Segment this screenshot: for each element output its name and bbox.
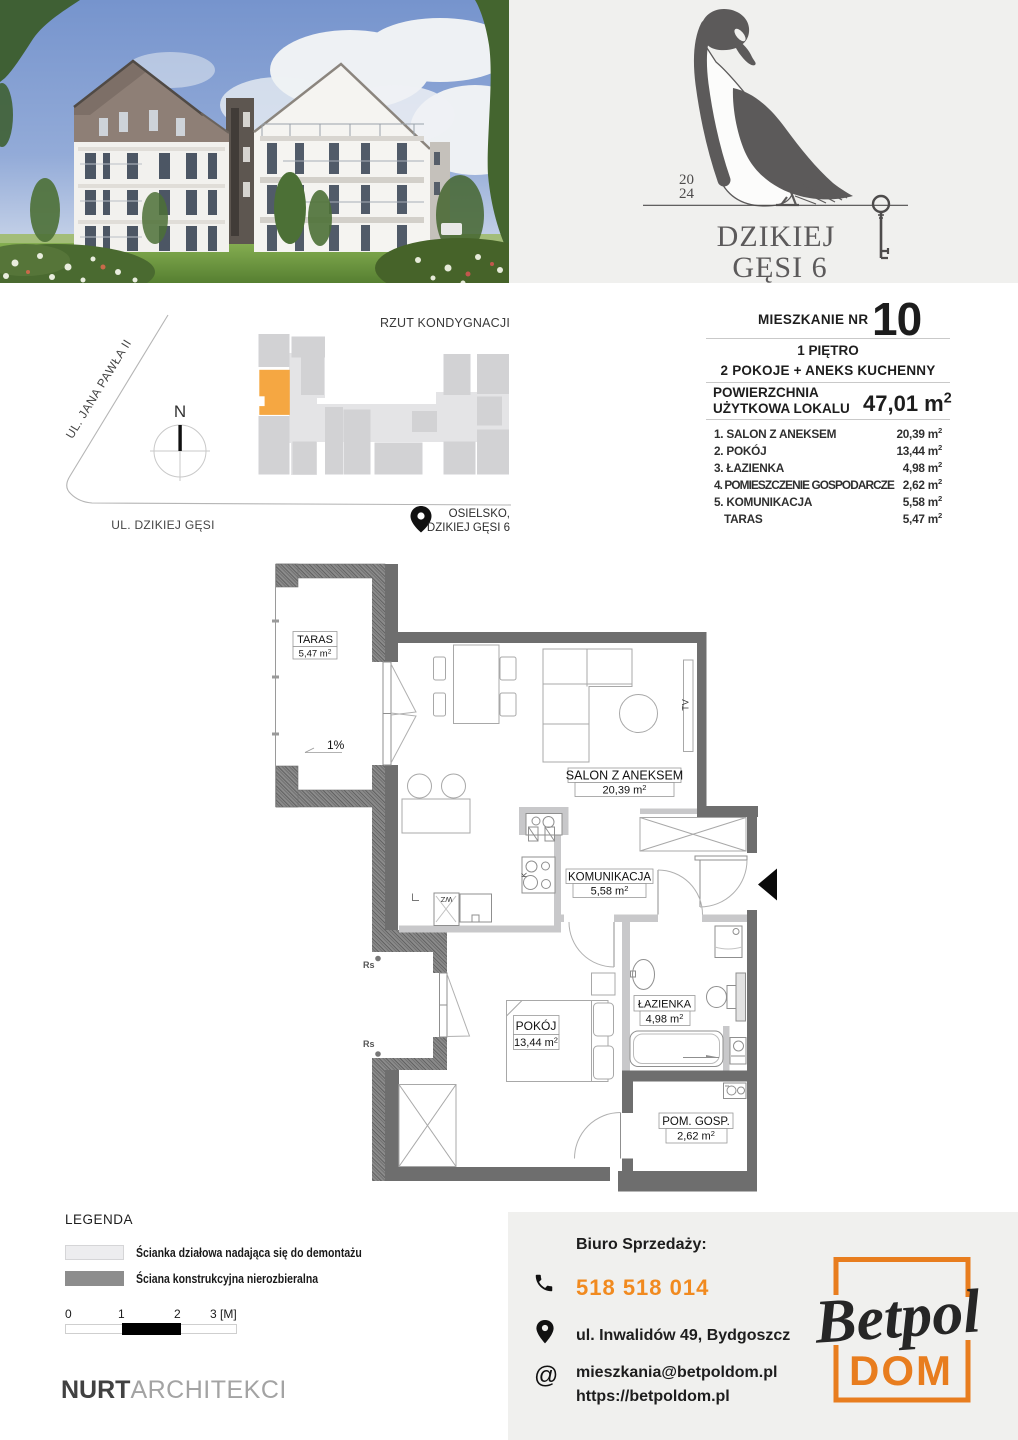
- svg-text:DZIKIEJ: DZIKIEJ: [717, 220, 836, 253]
- svg-text:5,58 m2: 5,58 m2: [591, 884, 629, 898]
- svg-text:13,44 m2: 13,44 m2: [514, 1036, 558, 1050]
- svg-text:KOMUNIKACJA: KOMUNIKACJA: [568, 872, 651, 884]
- svg-text:1%: 1%: [327, 738, 345, 752]
- svg-text:DOM: DOM: [849, 1347, 953, 1394]
- svg-text:TV: TV: [681, 699, 691, 711]
- svg-text:TARAS: TARAS: [297, 634, 333, 646]
- svg-text:GĘSI 6: GĘSI 6: [732, 251, 827, 283]
- svg-text:2,62 m2: 2,62 m2: [677, 1129, 715, 1143]
- svg-text:Rs: Rs: [363, 960, 375, 970]
- svg-text:4,98 m2: 4,98 m2: [646, 1012, 684, 1026]
- svg-text:24: 24: [679, 186, 695, 202]
- svg-text:N: N: [174, 402, 186, 421]
- svg-text:K: K: [520, 872, 529, 877]
- svg-text:DZIKIEJ GĘSI 6: DZIKIEJ GĘSI 6: [427, 522, 510, 534]
- svg-text:POKÓJ: POKÓJ: [516, 1018, 557, 1033]
- svg-text:POM. GOSP.: POM. GOSP.: [662, 1116, 730, 1128]
- svg-text:20,39 m2: 20,39 m2: [603, 783, 647, 797]
- svg-text:UL. DZIKIEJ GĘSI: UL. DZIKIEJ GĘSI: [111, 518, 215, 532]
- svg-text:5,47 m2: 5,47 m2: [299, 649, 332, 660]
- svg-text:RZUT KONDYGNACJI: RZUT KONDYGNACJI: [380, 316, 510, 330]
- svg-text:SALON Z ANEKSEM: SALON Z ANEKSEM: [566, 769, 683, 783]
- svg-text:Rs: Rs: [363, 1039, 375, 1049]
- svg-text:ŁAZIENKA: ŁAZIENKA: [638, 999, 692, 1011]
- svg-text:Betpol: Betpol: [812, 1277, 983, 1356]
- svg-text:OSIELSKO,: OSIELSKO,: [449, 508, 510, 520]
- svg-text:WZ: WZ: [440, 895, 452, 904]
